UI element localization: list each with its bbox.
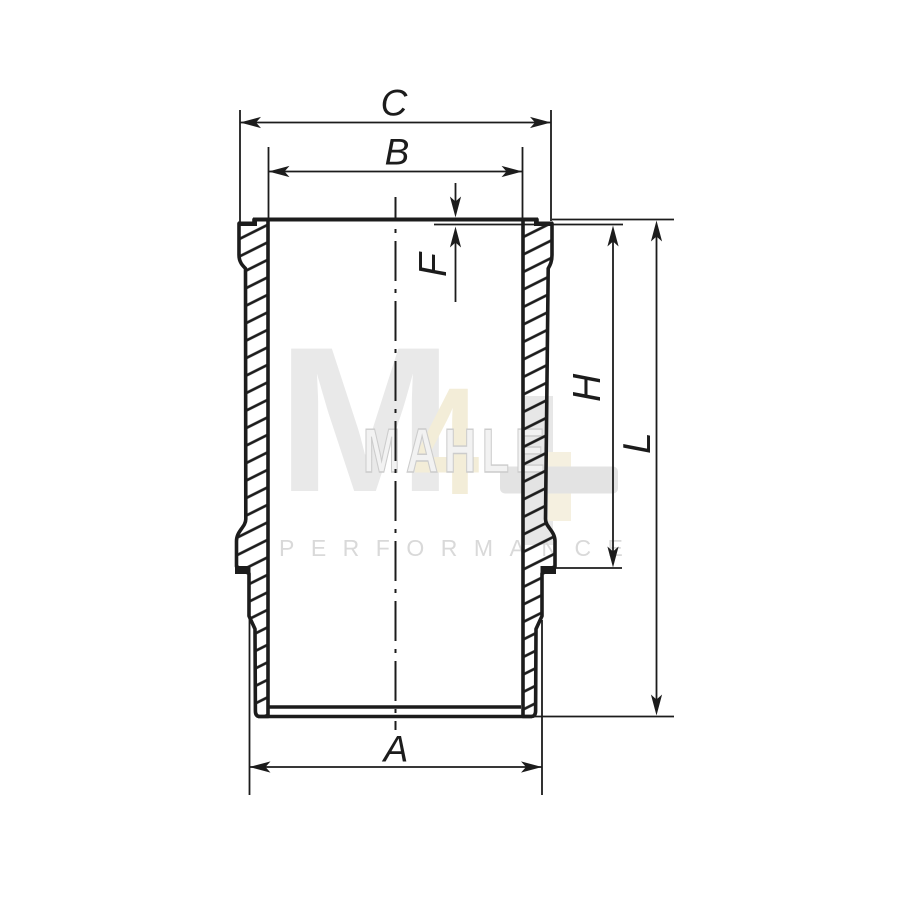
svg-text:L: L: [616, 432, 659, 454]
svg-text:A: A: [382, 729, 409, 770]
svg-text:F: F: [412, 251, 455, 277]
svg-text:PERFORMANCE: PERFORMANCE: [279, 535, 639, 561]
svg-text:C: C: [381, 83, 408, 124]
svg-text:B: B: [385, 132, 410, 173]
svg-text:H: H: [566, 373, 609, 402]
